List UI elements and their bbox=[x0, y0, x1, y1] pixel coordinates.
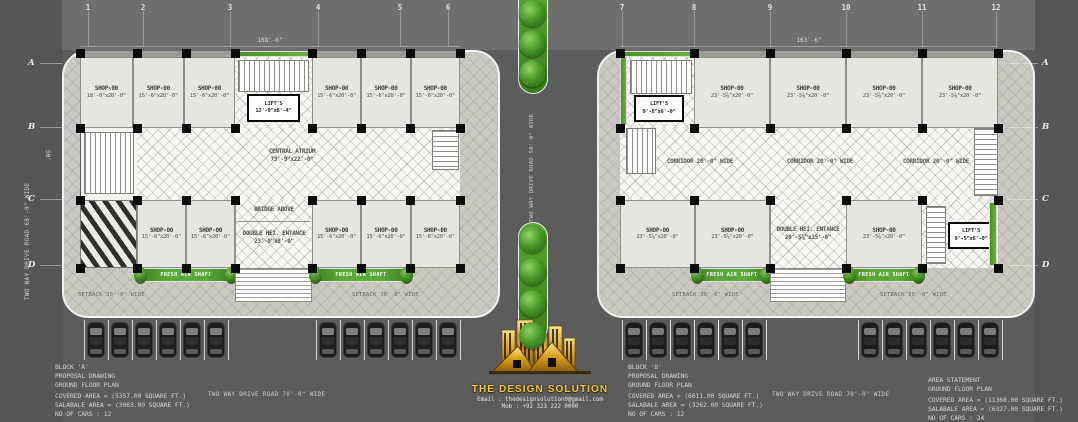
parked-car bbox=[746, 323, 762, 357]
parking-group bbox=[718, 320, 767, 360]
car-window bbox=[888, 328, 900, 335]
car-window bbox=[394, 328, 406, 335]
structural-column bbox=[994, 264, 1003, 273]
parked-car bbox=[626, 323, 642, 357]
car-window bbox=[418, 328, 430, 335]
parked-car bbox=[320, 323, 336, 357]
shop-size: 15'-6"x20'-0" bbox=[416, 234, 455, 241]
car-window bbox=[442, 328, 454, 335]
shop-label: SHOP-00 bbox=[150, 227, 173, 235]
median-tree bbox=[519, 60, 546, 87]
car-window bbox=[346, 349, 358, 354]
corridor-label: CORRIDOR 20'-0" WIDE bbox=[787, 158, 853, 166]
shop-size: 15'-6"x20'-0" bbox=[190, 93, 229, 100]
structural-column bbox=[616, 264, 625, 273]
logo-email: Email : thedesignsolution0@gmail.com bbox=[455, 397, 625, 403]
car-window bbox=[322, 349, 334, 354]
corridor-label: CORRIDOR 20'-0" WIDE bbox=[667, 158, 733, 166]
parking-group bbox=[84, 320, 229, 360]
grid-row-letter: B bbox=[28, 122, 35, 132]
dimension-line bbox=[620, 46, 998, 47]
car-window bbox=[90, 349, 102, 354]
median-tree bbox=[519, 0, 546, 27]
structural-column bbox=[406, 196, 415, 205]
block-b-bottom-shop-right: SHOP-0023'-5⅞"x20'-0" bbox=[846, 200, 922, 268]
block-a-atrium-stairs-left bbox=[84, 132, 134, 194]
shop-cell: SHOP-0023'-5⅞"x20'-0" bbox=[922, 57, 998, 128]
setback-label: SETBACK 30'-0" WIDE bbox=[672, 292, 739, 298]
dimension-text-right: 163'-6" bbox=[796, 37, 821, 44]
car-window bbox=[370, 337, 382, 345]
parked-car bbox=[440, 323, 456, 357]
structural-column bbox=[766, 49, 775, 58]
setback-label: SETBACK 30'-0" WIDE bbox=[880, 292, 947, 298]
parked-car bbox=[368, 323, 384, 357]
bottom-left-road-label: TWO WAY DRIVE ROAD 70'-0" WIDE bbox=[208, 391, 325, 398]
car-window bbox=[984, 337, 996, 345]
shop-size: 23'-5⅞"x20'-0" bbox=[939, 93, 981, 100]
car-window bbox=[90, 328, 102, 335]
block-a-atrium-stairs-right bbox=[432, 130, 459, 170]
block-b-salable-area: SALABALE AREA = (3262.00 SQUARE FT.) bbox=[628, 401, 763, 410]
block-b-plan-name: GROUND FLOOR PLAN bbox=[628, 381, 763, 390]
block-a-entrance-steps bbox=[235, 268, 312, 302]
grid-row-letter: A bbox=[1042, 58, 1049, 68]
shop-label: SHOP-00 bbox=[147, 85, 170, 93]
structural-column bbox=[994, 196, 1003, 205]
shop-size: 15'-6"x20'-0" bbox=[317, 93, 356, 100]
grid-column-number: 11 bbox=[917, 3, 926, 12]
structural-column bbox=[133, 196, 142, 205]
parked-car bbox=[958, 323, 974, 357]
shop-label: SHOP-00 bbox=[720, 85, 743, 93]
parked-car bbox=[910, 323, 926, 357]
car-window bbox=[700, 328, 712, 335]
parked-car bbox=[886, 323, 902, 357]
area-statement-plan: GROUND FLOOR PLAN bbox=[928, 385, 1063, 394]
car-window bbox=[724, 337, 736, 345]
block-b-info: BLOCK 'B' PROPOSAL DRAWING GROUND FLOOR … bbox=[628, 363, 763, 419]
grid-row-letter: A bbox=[28, 58, 35, 68]
block-b-left-green-bar bbox=[620, 57, 627, 125]
block-a-bottom-shops-left: SHOP-0015'-6"x20'-0"SHOP-0015'-6"x20'-0" bbox=[137, 200, 235, 268]
car-window bbox=[394, 337, 406, 345]
shop-label: SHOP-00 bbox=[325, 227, 348, 235]
fresh-air-shaft: FRESH AIR SHAFT bbox=[694, 268, 770, 282]
block-a-bottom-shops-right: SHOP-0015'-6"x20'-0"SHOP-0015'-6"x20'-0"… bbox=[312, 200, 460, 268]
structural-column bbox=[690, 196, 699, 205]
structural-column bbox=[357, 196, 366, 205]
shop-label: SHOP-00 bbox=[872, 85, 895, 93]
shop-size: 15'-6"x20'-0" bbox=[191, 234, 230, 241]
shop-label: SHOP-00 bbox=[198, 85, 221, 93]
corridor-label: CORRIDOR 20'-0" WIDE bbox=[903, 158, 969, 166]
structural-column bbox=[231, 264, 240, 273]
block-b-bottom-stairs bbox=[926, 206, 946, 264]
structural-column bbox=[406, 49, 415, 58]
row-grid-tick bbox=[40, 63, 62, 64]
block-a-top-stairs bbox=[238, 60, 309, 92]
car-window bbox=[114, 328, 126, 335]
median-tree bbox=[519, 226, 546, 253]
parked-car bbox=[392, 323, 408, 357]
car-window bbox=[960, 349, 972, 354]
car-window bbox=[724, 349, 736, 354]
grid-guide-line bbox=[922, 11, 923, 47]
structural-column bbox=[231, 124, 240, 133]
parked-car bbox=[416, 323, 432, 357]
structural-column bbox=[308, 49, 317, 58]
block-a-cars: NO OF CARS : 12 bbox=[55, 410, 190, 419]
shop-size: 15'-6"x20'-0" bbox=[416, 93, 455, 100]
car-window bbox=[138, 349, 150, 354]
setback-label: SETBACK 30'-0" WIDE bbox=[78, 292, 145, 298]
grid-guide-line bbox=[996, 11, 997, 47]
car-window bbox=[322, 328, 334, 335]
fresh-air-shaft: FRESH AIR SHAFT bbox=[846, 268, 922, 282]
median-tree bbox=[519, 258, 546, 285]
parking-group bbox=[622, 320, 719, 360]
car-window bbox=[676, 328, 688, 335]
structural-column bbox=[308, 264, 317, 273]
grid-guide-line bbox=[143, 11, 144, 47]
block-b-top-green-strip bbox=[620, 51, 694, 57]
entrance-a-name: DOUBLE HEI. ENTANCE bbox=[243, 230, 306, 238]
block-a-top-shops-left: SHOP-0018'-0"x20'-0"SHOP-0015'-6"x20'-0"… bbox=[80, 57, 235, 128]
car-window bbox=[210, 328, 222, 335]
block-a-info: BLOCK 'A' PROPOSAL DRAWING GROUND FLOOR … bbox=[55, 363, 190, 419]
structural-column bbox=[76, 196, 85, 205]
car-window bbox=[138, 337, 150, 345]
shop-label: SHOP-00 bbox=[325, 85, 348, 93]
car-window bbox=[162, 328, 174, 335]
block-a-plan-name: GROUND FLOOR PLAN bbox=[55, 381, 190, 390]
grid-row-letter: C bbox=[1042, 194, 1049, 204]
shop-size: 15'-6"x20'-0" bbox=[317, 234, 356, 241]
shop-size: 15'-6"x20'-0" bbox=[366, 234, 405, 241]
structural-column bbox=[357, 49, 366, 58]
structural-column bbox=[766, 196, 775, 205]
structural-column bbox=[182, 196, 191, 205]
shop-cell: SHOP-0023'-5⅞"x20'-0" bbox=[694, 57, 770, 128]
left-road-label: TWO WAY DRIVE ROAD 60'-0" WIDE bbox=[24, 130, 31, 300]
car-window bbox=[346, 337, 358, 345]
structural-column bbox=[182, 124, 191, 133]
logo-name: THE DESIGN SOLUTION bbox=[455, 384, 625, 395]
structural-column bbox=[994, 49, 1003, 58]
structural-column bbox=[231, 49, 240, 58]
shop-size: 23'-5⅞"x20'-0" bbox=[863, 234, 905, 241]
structural-column bbox=[133, 124, 142, 133]
shop-label: SHOP-00 bbox=[95, 85, 118, 93]
parked-car bbox=[208, 323, 224, 357]
car-window bbox=[210, 337, 222, 345]
shop-cell: SHOP-0015'-6"x20'-0" bbox=[312, 57, 361, 128]
car-window bbox=[394, 349, 406, 354]
grid-column-number: 5 bbox=[398, 3, 403, 12]
grid-guide-line bbox=[846, 11, 847, 47]
structural-column bbox=[76, 124, 85, 133]
car-window bbox=[628, 328, 640, 335]
grid-column-number: 9 bbox=[768, 3, 773, 12]
shop-size: 18'-0"x20'-0" bbox=[87, 93, 126, 100]
car-window bbox=[912, 328, 924, 335]
grid-guide-line bbox=[318, 11, 319, 47]
median-tree bbox=[519, 30, 546, 57]
bridge-note: BRIDGE ABOVE bbox=[254, 206, 294, 214]
car-window bbox=[864, 349, 876, 354]
structural-column bbox=[456, 49, 465, 58]
row-grid-tick bbox=[40, 127, 62, 128]
car-window bbox=[960, 328, 972, 335]
median-tree bbox=[519, 290, 546, 317]
car-window bbox=[936, 349, 948, 354]
block-b-lift-top: LIFT'S 9'-8"x6'-0" bbox=[634, 95, 684, 122]
grid-column-number: 6 bbox=[446, 3, 451, 12]
structural-column bbox=[76, 49, 85, 58]
car-window bbox=[370, 349, 382, 354]
car-window bbox=[748, 328, 760, 335]
bottom-right-road-label: TWO WAY DRIVE ROAD 70'-0" WIDE bbox=[772, 391, 889, 398]
shop-label: SHOP-00 bbox=[374, 227, 397, 235]
block-a-lift: LIFT'S 12'-0"x8'-4" bbox=[247, 94, 300, 122]
grid-column-number: 7 bbox=[620, 3, 625, 12]
structural-column bbox=[842, 49, 851, 58]
structural-column bbox=[766, 124, 775, 133]
block-a-top-green-strip bbox=[237, 51, 310, 57]
setback-label: SETBACK 30'-0" WIDE bbox=[352, 292, 419, 298]
dimension-line bbox=[80, 46, 460, 47]
row-grid-tick bbox=[40, 265, 62, 266]
block-b-entrance-steps bbox=[770, 268, 846, 302]
grid-column-number: 2 bbox=[141, 3, 146, 12]
shop-size: 23'-5⅞"x20'-0" bbox=[711, 234, 753, 241]
car-window bbox=[912, 337, 924, 345]
grid-guide-line bbox=[230, 11, 231, 47]
structural-column bbox=[133, 264, 142, 273]
logo-mobile: Mob : +92 323 222 0000 bbox=[455, 404, 625, 410]
structural-column bbox=[182, 264, 191, 273]
structural-column bbox=[133, 49, 142, 58]
lift-size: 12'-0"x8'-4" bbox=[255, 108, 291, 115]
area-statement: AREA STATEMENT GROUND FLOOR PLAN COVERED… bbox=[928, 376, 1063, 422]
car-window bbox=[186, 349, 198, 354]
shop-cell: SHOP-0015'-6"x20'-0" bbox=[133, 57, 184, 128]
shop-size: 15'-6"x20'-0" bbox=[142, 234, 181, 241]
lift-label: LIFT'S bbox=[264, 101, 282, 108]
car-window bbox=[652, 337, 664, 345]
row-grid-tick bbox=[1008, 127, 1038, 128]
structural-column bbox=[766, 264, 775, 273]
area-statement-covered: COVERED AREA = (11368.00 SQUARE FT.) bbox=[928, 396, 1063, 405]
car-window bbox=[676, 337, 688, 345]
grid-guide-line bbox=[88, 11, 89, 47]
parked-car bbox=[136, 323, 152, 357]
grid-row-letter: C bbox=[28, 194, 35, 204]
car-window bbox=[186, 328, 198, 335]
shop-size: 23'-5⅞"x20'-0" bbox=[787, 93, 829, 100]
atrium-label: CENTRAL ATRIUM 73'-9"x22'-0" bbox=[269, 148, 315, 164]
entrance-a-label: DOUBLE HEI. ENTANCE 23'-0"x8'-0" bbox=[243, 230, 306, 246]
car-window bbox=[960, 337, 972, 345]
shop-cell: SHOP-0023'-5⅞"x20'-0" bbox=[695, 200, 770, 268]
car-window bbox=[652, 349, 664, 354]
block-b-right-green-bar bbox=[989, 202, 997, 266]
shop-cell: SHOP-0015'-6"x20'-0" bbox=[411, 57, 460, 128]
area-statement-title: AREA STATEMENT bbox=[928, 376, 1063, 385]
atrium-size: 73'-9"x22'-0" bbox=[269, 156, 315, 164]
structural-column bbox=[918, 264, 927, 273]
structural-column bbox=[231, 196, 240, 205]
car-window bbox=[322, 337, 334, 345]
structural-column bbox=[357, 124, 366, 133]
grid-column-number: 1 bbox=[86, 3, 91, 12]
dimension-text-left: 188'-6" bbox=[257, 37, 282, 44]
car-window bbox=[186, 337, 198, 345]
car-window bbox=[864, 337, 876, 345]
shop-size: 23'-5⅞"x20'-0" bbox=[636, 234, 678, 241]
car-window bbox=[442, 337, 454, 345]
shop-cell: SHOP-0015'-6"x20'-0" bbox=[361, 200, 410, 268]
car-window bbox=[748, 337, 760, 345]
parking-group bbox=[316, 320, 461, 360]
structural-column bbox=[616, 196, 625, 205]
grid-row-letter: D bbox=[28, 260, 35, 270]
car-window bbox=[628, 337, 640, 345]
block-b-top-stairs bbox=[630, 60, 692, 94]
block-b-corridor-stairs-right bbox=[974, 128, 998, 196]
atrium-name: CENTRAL ATRIUM bbox=[269, 148, 315, 156]
car-window bbox=[114, 337, 126, 345]
structural-column bbox=[616, 124, 625, 133]
car-window bbox=[888, 337, 900, 345]
structural-column bbox=[406, 124, 415, 133]
area-statement-cars: NO OF CARS : 24 bbox=[928, 414, 1063, 422]
grid-guide-line bbox=[622, 11, 623, 47]
area-statement-salable: SALABALE AREA = (6327.00 SQUARE FT.) bbox=[928, 405, 1063, 414]
grid-row-letter: B bbox=[1042, 122, 1049, 132]
structural-column bbox=[182, 49, 191, 58]
grid-guide-line bbox=[448, 11, 449, 47]
parked-car bbox=[112, 323, 128, 357]
car-window bbox=[90, 337, 102, 345]
grid-guide-line bbox=[770, 11, 771, 47]
car-window bbox=[700, 349, 712, 354]
dimension-text-depth: 50' bbox=[44, 150, 51, 161]
car-window bbox=[162, 337, 174, 345]
plan-graphic bbox=[513, 360, 521, 368]
car-window bbox=[724, 328, 736, 335]
lift-label: LIFT'S bbox=[650, 101, 668, 108]
shop-cell: SHOP-0023'-5⅞"x20'-0" bbox=[846, 200, 922, 268]
parked-car bbox=[650, 323, 666, 357]
center-road-label: TWO WAY DRIVE ROAD 50'-0" WIDE bbox=[529, 100, 535, 222]
lift-size: 9'-8"x6'-0" bbox=[642, 109, 675, 116]
structural-column bbox=[308, 196, 317, 205]
shop-label: SHOP-00 bbox=[796, 85, 819, 93]
parked-car bbox=[982, 323, 998, 357]
shop-cell: SHOP-0015'-6"x20'-0" bbox=[137, 200, 186, 268]
grid-row-letter: D bbox=[1042, 260, 1049, 270]
grid-column-number: 8 bbox=[692, 3, 697, 12]
structural-column bbox=[994, 124, 1003, 133]
structural-column bbox=[616, 49, 625, 58]
structural-column bbox=[76, 264, 85, 273]
structural-column bbox=[456, 124, 465, 133]
car-window bbox=[370, 328, 382, 335]
shop-size: 15'-6"x20'-0" bbox=[366, 93, 405, 100]
car-window bbox=[442, 349, 454, 354]
block-a-title: BLOCK 'A' bbox=[55, 363, 190, 372]
block-b-covered-area: COVERED AREA = (6011.00 SQUARE FT.) bbox=[628, 392, 763, 401]
structural-column bbox=[406, 264, 415, 273]
grid-column-number: 12 bbox=[991, 3, 1000, 12]
shop-cell: SHOP-0018'-0"x20'-0" bbox=[80, 57, 133, 128]
shop-cell: SHOP-0015'-6"x20'-0" bbox=[186, 200, 235, 268]
entrance-b-label: DOUBLE HEI. ENTANCE 20'-5⅞"x15'-0" bbox=[777, 226, 840, 242]
row-grid-tick bbox=[1008, 265, 1038, 266]
block-a-ramp bbox=[80, 200, 137, 268]
structural-column bbox=[690, 124, 699, 133]
car-window bbox=[652, 328, 664, 335]
shop-label: SHOP-00 bbox=[424, 85, 447, 93]
structural-column bbox=[918, 49, 927, 58]
grid-guide-line bbox=[694, 11, 695, 47]
shop-label: SHOP-00 bbox=[374, 85, 397, 93]
structural-column bbox=[456, 196, 465, 205]
row-grid-tick bbox=[1008, 199, 1038, 200]
lift-size: 9'-5"x6'-0" bbox=[954, 236, 987, 243]
parked-car bbox=[722, 323, 738, 357]
row-grid-tick bbox=[40, 199, 62, 200]
grid-guide-line bbox=[400, 11, 401, 47]
block-a-salable-area: SALABALE AREA = (3063.00 SQUARE FT.) bbox=[55, 401, 190, 410]
site-plan-canvas: SHOP-0018'-0"x20'-0"SHOP-0015'-6"x20'-0"… bbox=[0, 0, 1078, 422]
shop-cell: SHOP-0023'-5⅞"x20'-0" bbox=[620, 200, 695, 268]
shop-cell: SHOP-0015'-6"x20'-0" bbox=[411, 200, 460, 268]
parked-car bbox=[184, 323, 200, 357]
car-window bbox=[888, 349, 900, 354]
plan-graphic bbox=[548, 358, 556, 367]
block-b-bottom-shops-left: SHOP-0023'-5⅞"x20'-0"SHOP-0023'-5⅞"x20'-… bbox=[620, 200, 770, 268]
car-window bbox=[676, 349, 688, 354]
parked-car bbox=[88, 323, 104, 357]
parked-car bbox=[344, 323, 360, 357]
car-window bbox=[418, 349, 430, 354]
shop-cell: SHOP-0015'-6"x20'-0" bbox=[312, 200, 361, 268]
block-b-title: BLOCK 'B' bbox=[628, 363, 763, 372]
grid-column-number: 3 bbox=[228, 3, 233, 12]
parked-car bbox=[698, 323, 714, 357]
top-road bbox=[62, 0, 1035, 50]
block-b-drawing-type: PROPOSAL DRAWING bbox=[628, 372, 763, 381]
shop-cell: SHOP-0023'-5⅞"x20'-0" bbox=[770, 57, 846, 128]
entrance-b-name: DOUBLE HEI. ENTANCE bbox=[777, 226, 840, 234]
structural-column bbox=[308, 124, 317, 133]
parked-car bbox=[934, 323, 950, 357]
shop-label: SHOP-00 bbox=[199, 227, 222, 235]
block-b-top-shops: SHOP-0023'-5⅞"x20'-0"SHOP-0023'-5⅞"x20'-… bbox=[694, 57, 998, 128]
block-a-drawing-type: PROPOSAL DRAWING bbox=[55, 372, 190, 381]
car-window bbox=[114, 349, 126, 354]
shop-size: 23'-5⅞"x20'-0" bbox=[863, 93, 905, 100]
parked-car bbox=[862, 323, 878, 357]
structural-column bbox=[842, 124, 851, 133]
shop-cell: SHOP-0015'-6"x20'-0" bbox=[184, 57, 235, 128]
entrance-a-size: 23'-0"x8'-0" bbox=[243, 238, 306, 246]
shop-cell: SHOP-0023'-5⅞"x20'-0" bbox=[846, 57, 922, 128]
plan-graphic bbox=[489, 371, 591, 374]
